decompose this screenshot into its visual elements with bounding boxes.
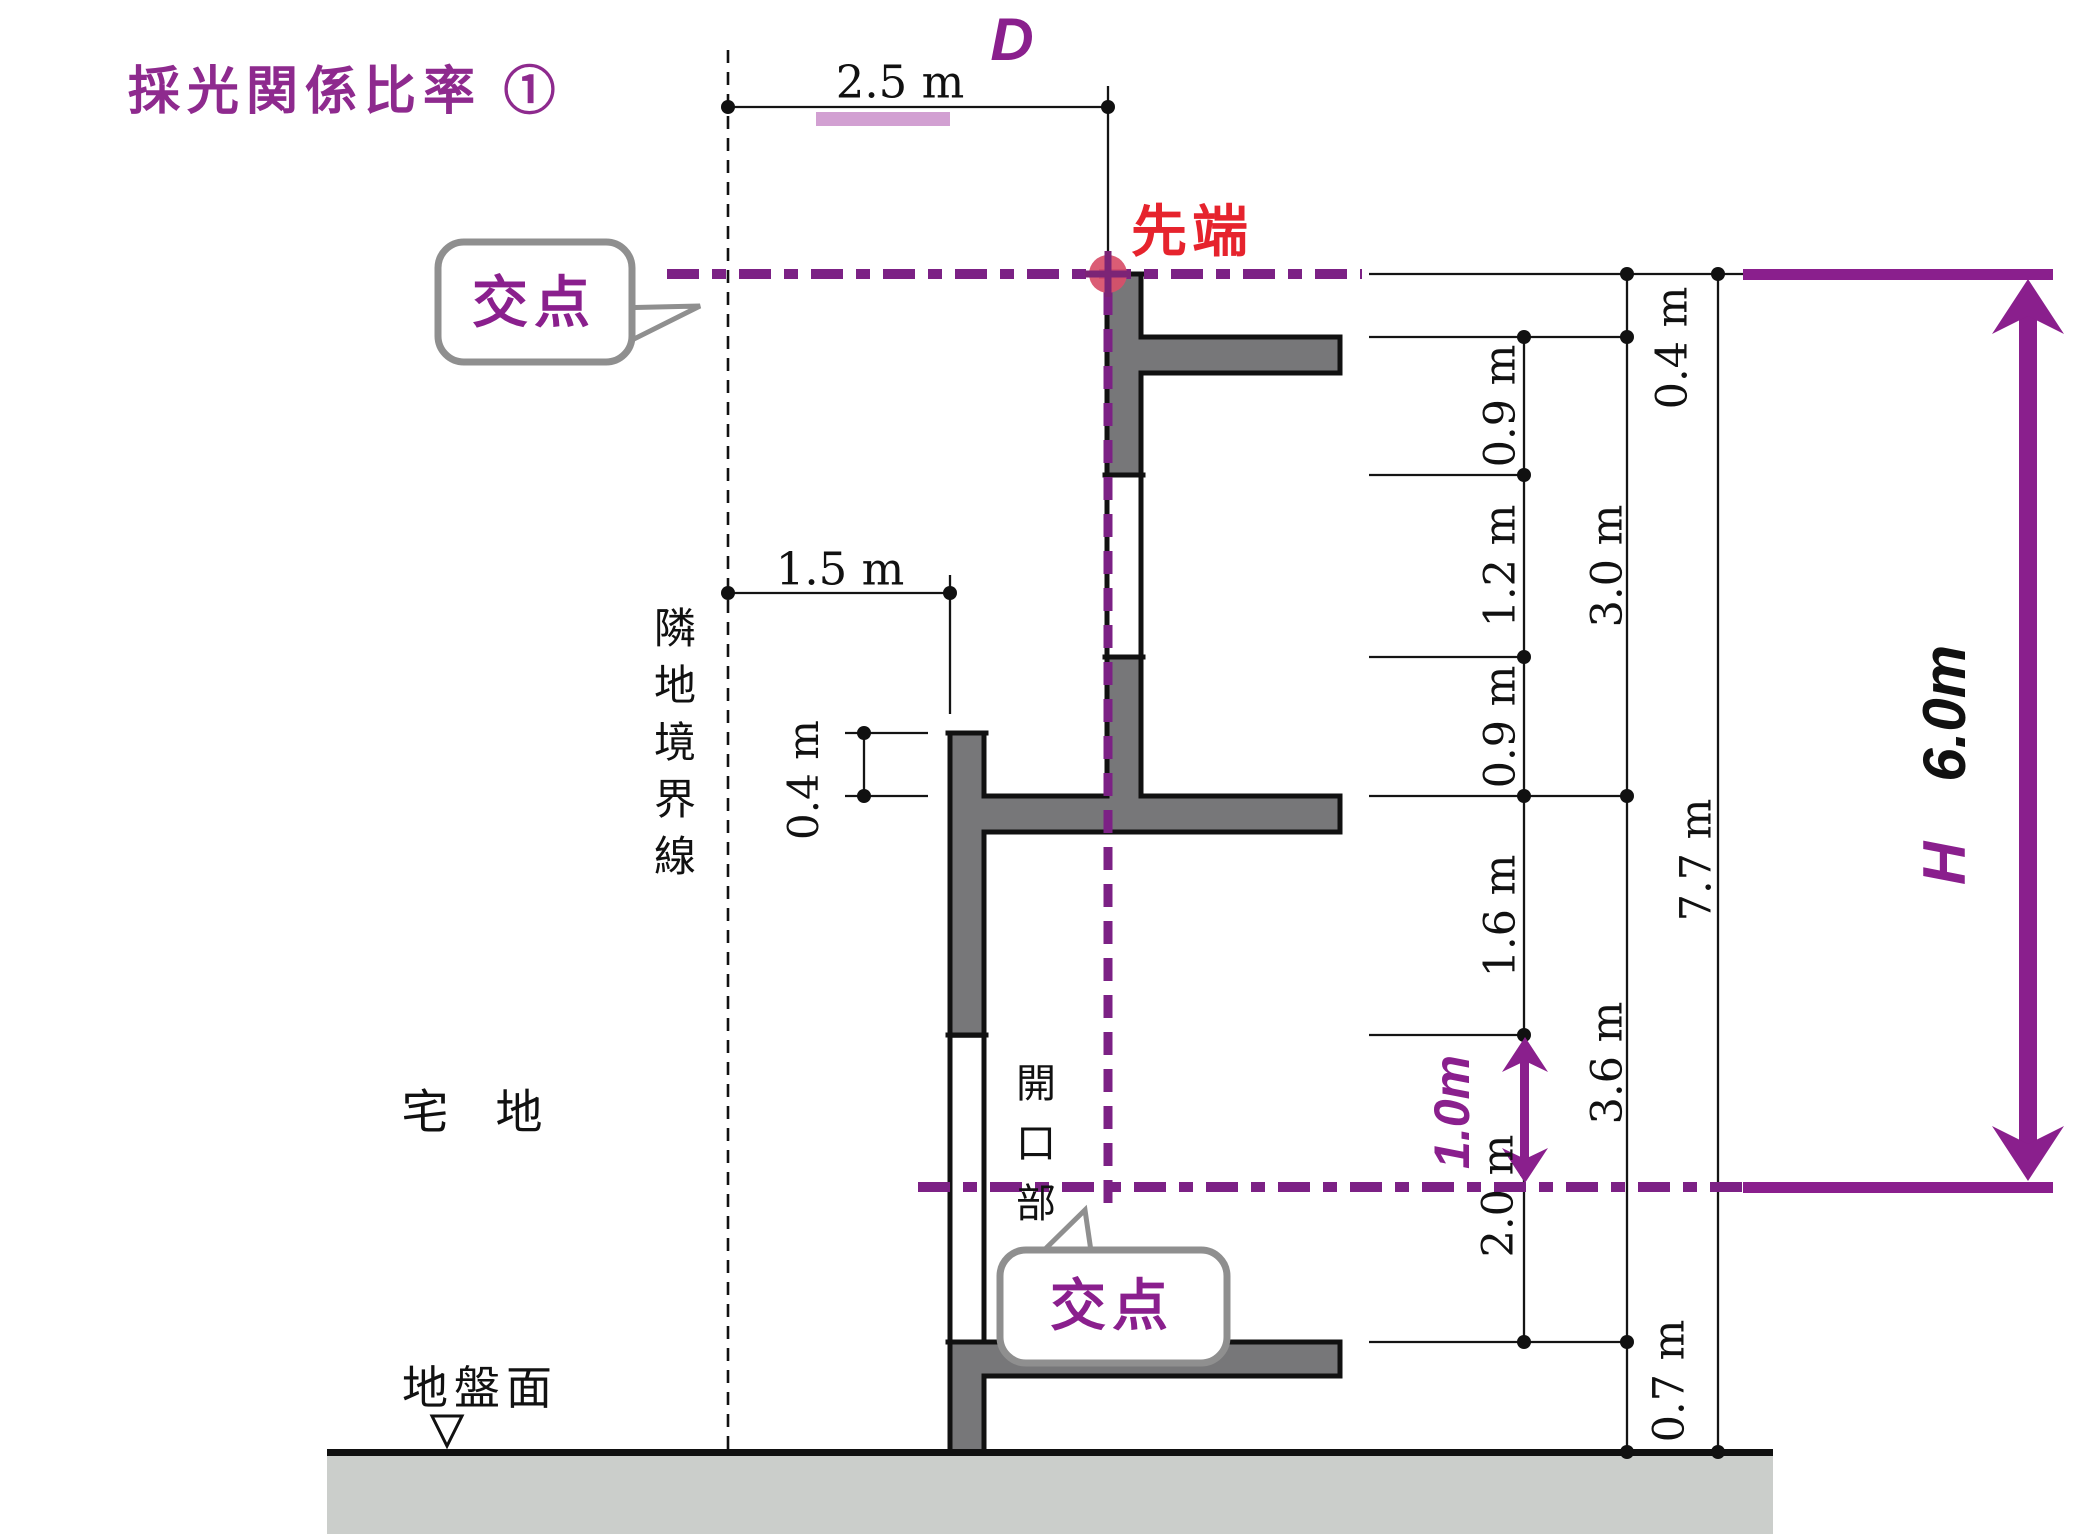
dim-inner-4: 2.0 m — [1478, 1135, 1521, 1258]
callout-top-text: 交点 — [472, 275, 596, 331]
dim-middle-3: 0.7 m — [1649, 1320, 1692, 1443]
height-arrow-top-bar — [1743, 269, 2053, 280]
page-title: 採光関係比率 ① — [128, 66, 562, 118]
callout-bottom-text: 交点 — [1050, 1278, 1174, 1334]
dim-middle-2: 3.6 m — [1587, 1002, 1630, 1125]
tip-label: 先端 — [1131, 204, 1253, 260]
ground-surface-line — [327, 1449, 1773, 1456]
ground-surface-label: 地盤面 — [402, 1365, 558, 1411]
height-arrow — [1743, 269, 2064, 1193]
ground-level-marker-icon — [432, 1416, 462, 1446]
middle-slab — [950, 796, 1340, 832]
dim-total: 7.7 m — [1676, 799, 1719, 922]
pink-highlight-bar — [816, 112, 950, 126]
d-symbol-label: D — [990, 10, 1033, 70]
dimension-lines — [728, 86, 1743, 1449]
dim-inner-3: 1.6 m — [1480, 855, 1523, 978]
offset-dimension: 1.0m — [1427, 1055, 1477, 1169]
height-spacer — [1911, 782, 1978, 842]
dim-inner-0: 0.9 m — [1480, 345, 1523, 468]
parapet-dimension: 0.4 m — [783, 720, 825, 840]
lot-label: 宅 地 — [402, 1090, 543, 1137]
height-value: 6.0m — [1911, 645, 1978, 782]
opening-label: 開口部 — [1003, 1062, 1061, 1242]
ground-fill — [327, 1456, 1773, 1534]
boundary-line-label: 隣地境界線 — [642, 606, 703, 891]
dim-middle-0: 0.4 m — [1652, 287, 1695, 410]
top-width-dimension: 2.5 m — [836, 60, 965, 105]
dim-inner-1: 1.2 m — [1480, 505, 1523, 628]
setback-dimension: 1.5 m — [776, 547, 905, 592]
dim-middle-1: 3.0 m — [1587, 505, 1630, 628]
height-symbol: H — [1911, 842, 1978, 885]
height-annotation: H 6.0m — [1915, 645, 1975, 885]
dim-inner-2: 0.9 m — [1480, 666, 1523, 789]
height-arrow-shaft — [2019, 296, 2037, 1166]
upper-window-opening — [1109, 477, 1139, 655]
roof-slab — [1141, 337, 1340, 373]
dimension-dots — [721, 100, 1725, 1459]
height-arrow-bottom-bar — [1743, 1182, 2053, 1193]
daylight-ratio-diagram: 採光関係比率 ① D 2.5 m 先端 交点 交点 隣地境界線 1.5 m 0.… — [0, 0, 2100, 1540]
